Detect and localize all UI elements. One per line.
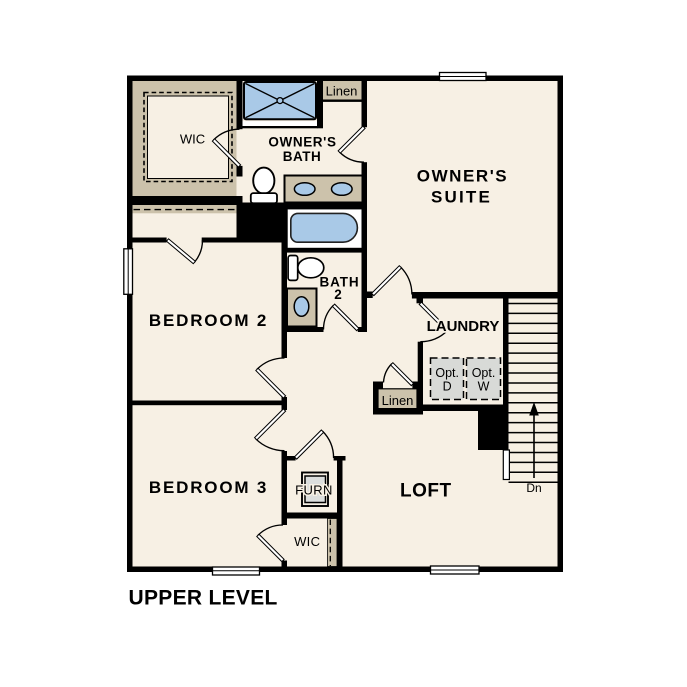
svg-text:WIC: WIC [180, 132, 205, 147]
svg-text:D: D [443, 380, 452, 394]
svg-text:Opt.: Opt. [472, 366, 496, 380]
svg-text:LOFT: LOFT [400, 481, 452, 502]
svg-text:Linen: Linen [326, 84, 358, 99]
svg-text:Dn: Dn [526, 481, 541, 495]
svg-text:OWNER'S: OWNER'S [268, 135, 336, 150]
svg-text:FURN: FURN [295, 482, 333, 497]
svg-text:W: W [478, 380, 490, 394]
svg-text:BATH: BATH [283, 149, 322, 164]
svg-text:LAUNDRY: LAUNDRY [427, 318, 500, 335]
svg-text:UPPER LEVEL: UPPER LEVEL [129, 587, 278, 610]
svg-text:OWNER'S: OWNER'S [417, 167, 508, 186]
svg-text:BEDROOM 2: BEDROOM 2 [149, 311, 268, 330]
svg-text:Linen: Linen [382, 393, 414, 408]
svg-text:SUITE: SUITE [431, 187, 492, 206]
svg-text:2: 2 [334, 287, 342, 302]
svg-text:BEDROOM 3: BEDROOM 3 [149, 478, 268, 497]
svg-text:Opt.: Opt. [435, 366, 459, 380]
svg-text:WIC: WIC [294, 534, 320, 549]
